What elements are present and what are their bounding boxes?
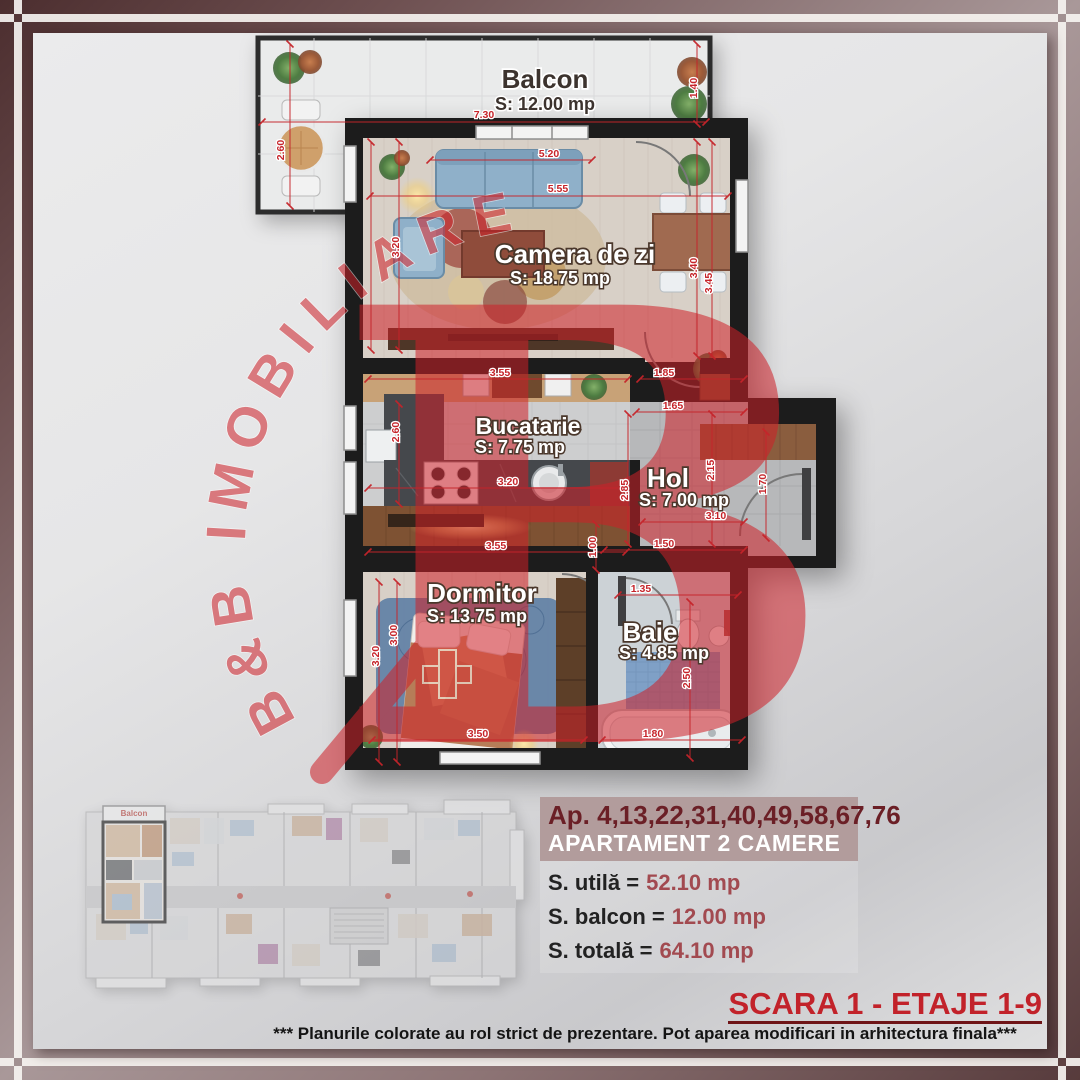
frame-corner-square bbox=[14, 1058, 22, 1066]
area-value: 12.00 mp bbox=[672, 904, 766, 929]
area-value: 52.10 mp bbox=[646, 870, 740, 895]
frame-stripe-left bbox=[14, 0, 22, 1080]
area-label: S. balcon = bbox=[548, 904, 665, 929]
frame-corner-square bbox=[14, 14, 22, 22]
area-summary: S. utilă =52.10 mp S. balcon =12.00 mp S… bbox=[540, 861, 858, 973]
frame-stripe-bottom bbox=[0, 1058, 1080, 1066]
area-value: 64.10 mp bbox=[660, 938, 754, 963]
apartment-info-panel: Ap. 4,13,22,31,40,49,58,67,76 APARTAMENT… bbox=[540, 797, 858, 973]
frame-stripe-top bbox=[0, 14, 1080, 22]
frame-corner-square bbox=[1058, 1058, 1066, 1066]
floorplan-poster: B B&B IMOBILIARE bbox=[0, 0, 1080, 1080]
frame-corner-square bbox=[1058, 14, 1066, 22]
apartment-type: APARTAMENT 2 CAMERE bbox=[548, 830, 850, 856]
apartment-numbers: Ap. 4,13,22,31,40,49,58,67,76 bbox=[548, 801, 850, 830]
info-header: Ap. 4,13,22,31,40,49,58,67,76 APARTAMENT… bbox=[540, 797, 858, 861]
stair-floor-title: SCARA 1 - ETAJE 1-9 bbox=[728, 988, 1042, 1024]
area-row-utila: S. utilă =52.10 mp bbox=[548, 870, 850, 895]
area-label: S. totală = bbox=[548, 938, 653, 963]
disclaimer-text: *** Planurile colorate au rol strict de … bbox=[240, 1024, 1050, 1044]
area-label: S. utilă = bbox=[548, 870, 639, 895]
area-row-balcon: S. balcon =12.00 mp bbox=[548, 904, 850, 929]
area-row-totala: S. totală =64.10 mp bbox=[548, 938, 850, 963]
frame-stripe-right bbox=[1058, 0, 1066, 1080]
